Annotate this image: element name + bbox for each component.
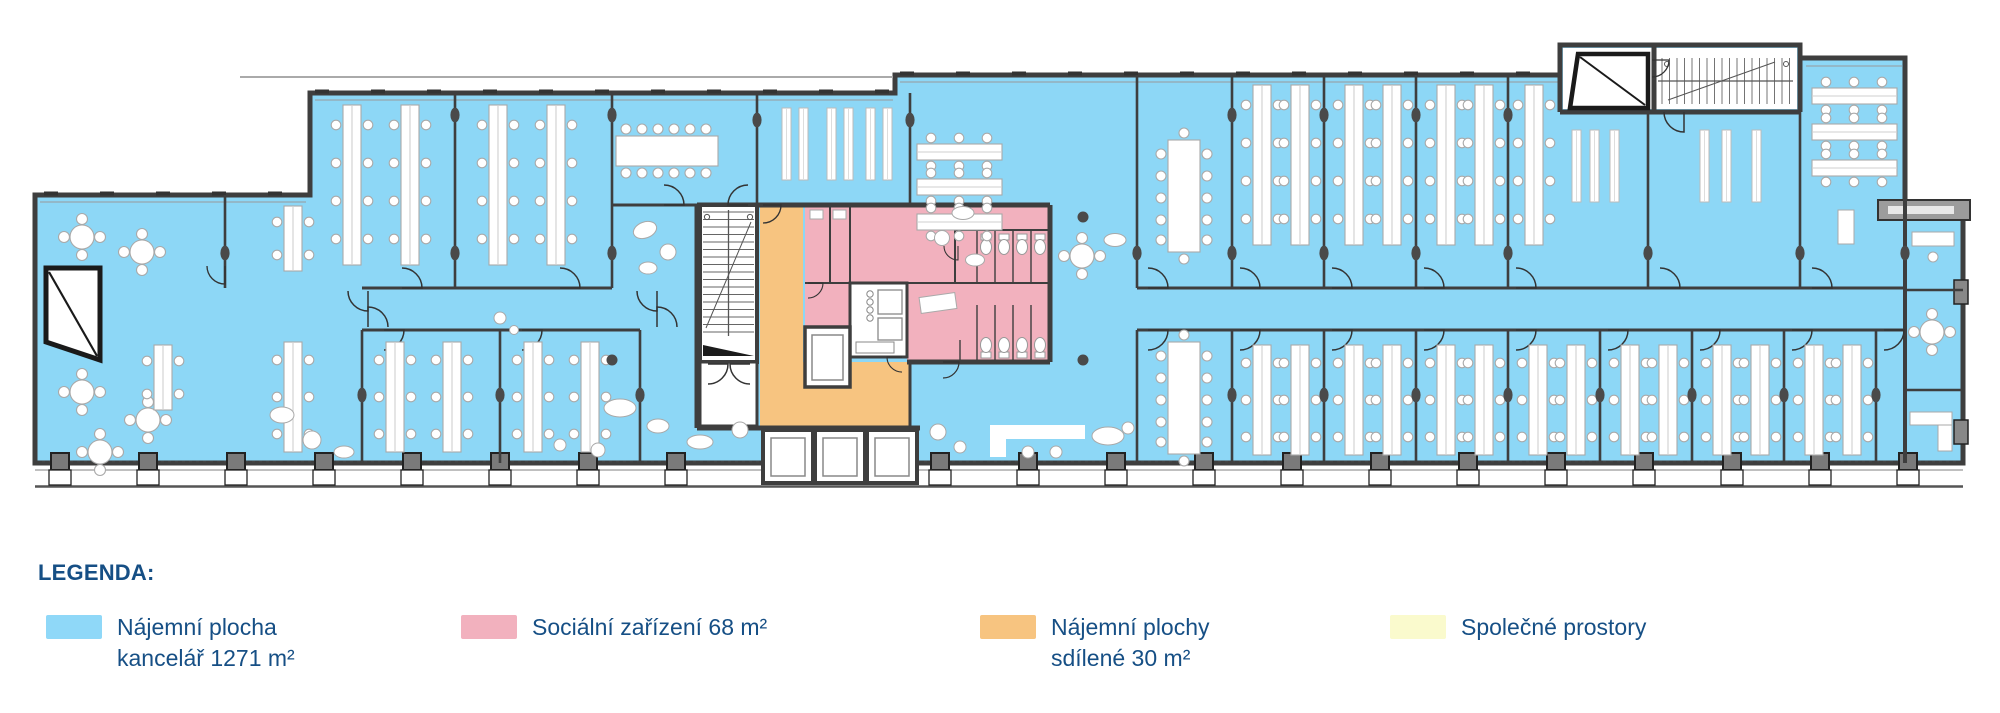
- main-staircase: [700, 205, 757, 426]
- kitchen-room: [850, 283, 907, 357]
- floor-plan-drawing: [0, 0, 2000, 713]
- stair-lobby: [700, 362, 757, 426]
- shaft: [1570, 54, 1648, 108]
- floor-plan-page: LEGENDA: Nájemní plocha kancelář 1271 m²…: [0, 0, 2000, 713]
- elevator-bank: [763, 430, 917, 483]
- side-elevator: [805, 327, 850, 387]
- exterior-shaft: [46, 268, 100, 360]
